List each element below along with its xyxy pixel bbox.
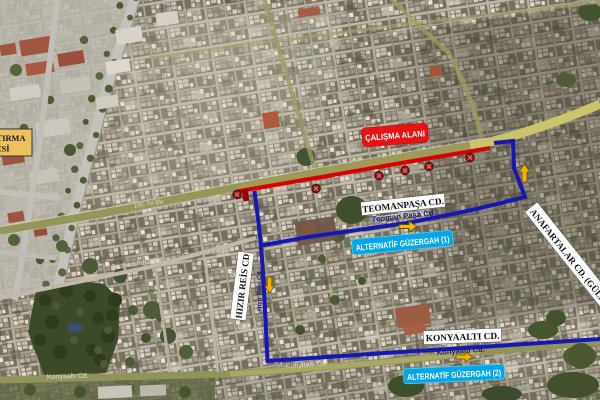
svg-text:ARAŞTIRMA: ARAŞTIRMA [0, 134, 26, 143]
svg-text:Konyaaltı Cd.: Konyaaltı Cd. [47, 373, 89, 381]
svg-text:HASTANESİ: HASTANESİ [0, 144, 10, 154]
svg-text:Hızır Reis Cd: Hızır Reis Cd [257, 271, 264, 311]
